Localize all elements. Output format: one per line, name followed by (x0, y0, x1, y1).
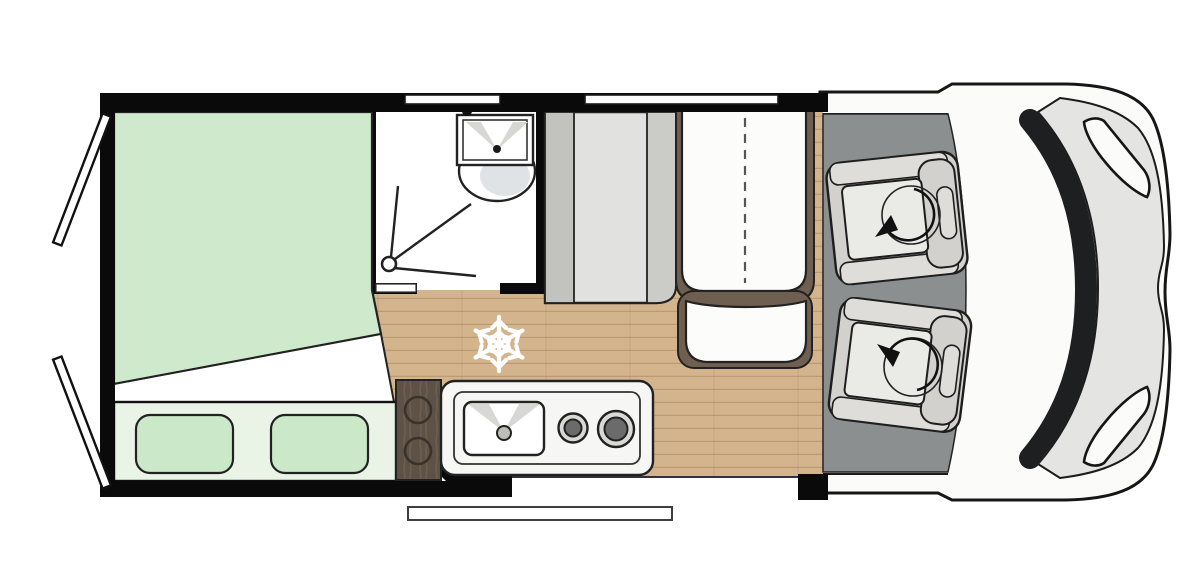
entry-step (408, 507, 672, 520)
rear-bed (114, 112, 396, 481)
burner-center (565, 420, 582, 437)
floorplan-canvas (0, 0, 1200, 571)
wall-bpillar-stub (798, 474, 828, 500)
swivel-seat-driver (825, 150, 969, 285)
pillow (271, 415, 368, 473)
wardrobe-left-panel (545, 112, 574, 303)
pillow (136, 415, 233, 473)
wardrobe-right-panel (647, 112, 676, 303)
bathroom-wall-bottom-right (500, 283, 545, 294)
wardrobe-cabinet (545, 112, 676, 303)
driver-cab (823, 114, 973, 472)
wall-rear (100, 93, 115, 497)
burner-center (605, 418, 628, 441)
bathroom (372, 106, 545, 294)
window-bathroom (405, 95, 500, 104)
basin-drain-icon (493, 145, 501, 153)
sink-faucet-icon (497, 426, 511, 440)
window-lounge (585, 95, 778, 104)
bathroom-wall-right (536, 112, 545, 293)
bathroom-pocket-door (376, 284, 416, 292)
wall-bottom (100, 481, 512, 497)
travel-bench (676, 106, 814, 368)
footstool (686, 301, 806, 362)
swivel-seat-passenger (827, 296, 973, 433)
